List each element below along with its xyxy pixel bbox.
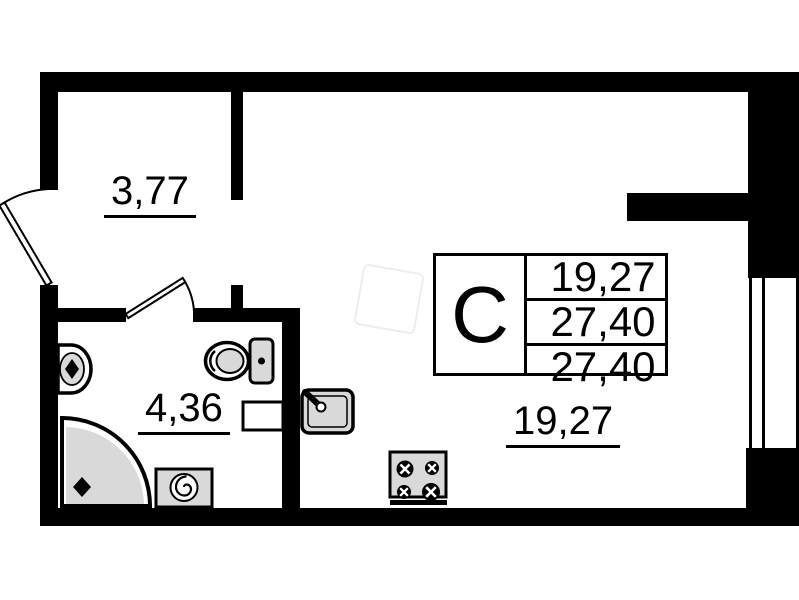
entrance-door-icon: [0, 189, 52, 286]
unit-area-row-total: 27,40: [527, 301, 665, 346]
corner-shower-icon: [62, 418, 150, 506]
unit-type-label: С: [436, 256, 527, 373]
wash-basin-icon: [56, 344, 91, 394]
stove-icon: [390, 452, 447, 505]
room-label-hallway: 3,77: [104, 170, 196, 218]
toilet-icon: [206, 339, 274, 383]
ventilation-niche: [243, 402, 283, 430]
kitchen-sink-icon: [302, 390, 353, 433]
fixtures-layer: [0, 0, 799, 600]
room-label-living-kitchen: 19,27: [506, 400, 620, 448]
unit-area-rows: 19,27 27,40 27,40: [527, 256, 665, 373]
floor-plan: 3,77 4,36 19,27 С 19,27 27,40 27,40: [0, 0, 799, 600]
unit-area-row-total-reduced: 27,40: [527, 346, 665, 388]
unit-info-table: С 19,27 27,40 27,40: [433, 253, 668, 376]
room-label-bathroom: 4,36: [138, 387, 230, 435]
bathroom-door-icon: [126, 278, 194, 318]
washing-machine-icon: [156, 469, 212, 507]
unit-area-row-living: 19,27: [527, 256, 665, 301]
